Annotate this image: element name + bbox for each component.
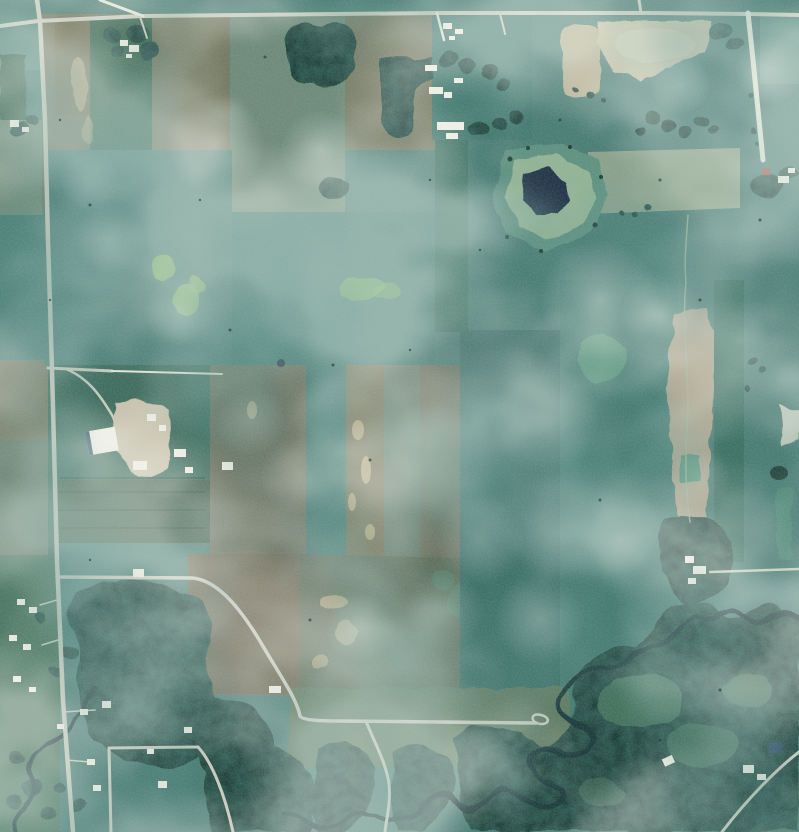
- film-grain: [0, 0, 799, 832]
- aerial-photo-canvas: [0, 0, 799, 832]
- aerial-photo: [0, 0, 799, 832]
